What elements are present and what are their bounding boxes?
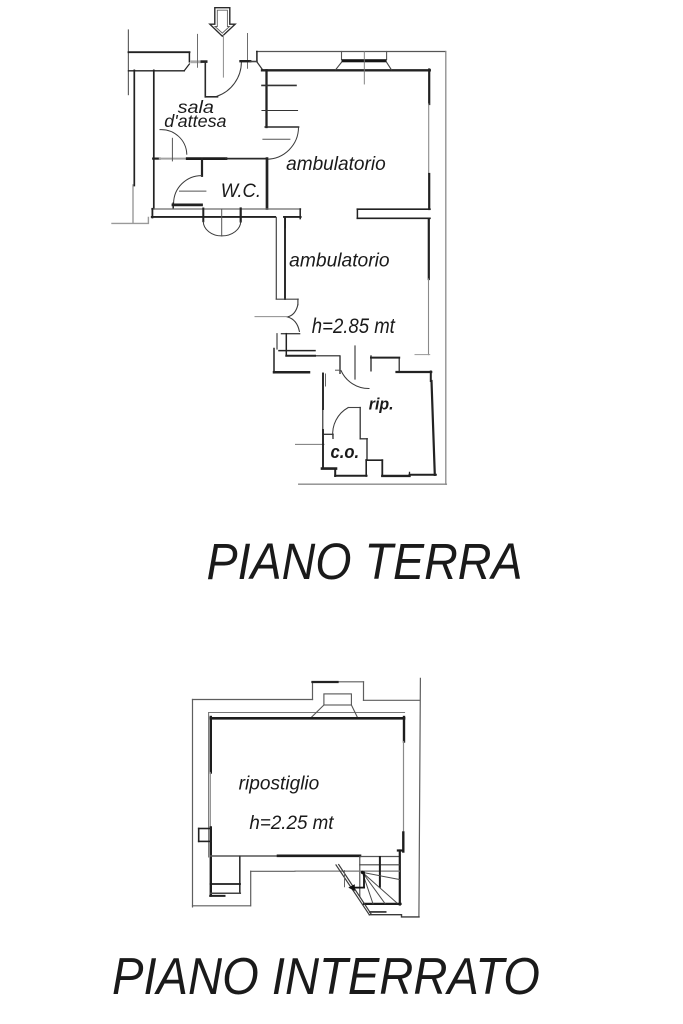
svg-text:h=2.25 mt: h=2.25 mt (249, 813, 334, 834)
svg-text:PIANO TERRA: PIANO TERRA (207, 533, 523, 590)
svg-text:PIANO INTERRATO: PIANO INTERRATO (112, 948, 540, 1006)
svg-text:h=2.85 mt: h=2.85 mt (312, 315, 396, 338)
svg-text:rip.: rip. (369, 395, 394, 414)
svg-text:ambulatorio: ambulatorio (286, 154, 386, 175)
svg-text:ambulatorio: ambulatorio (289, 251, 389, 272)
svg-text:d'attesa: d'attesa (164, 111, 226, 131)
svg-text:ripostiglio: ripostiglio (239, 773, 320, 794)
svg-text:W.C.: W.C. (221, 181, 261, 202)
svg-text:c.o.: c.o. (331, 442, 360, 462)
